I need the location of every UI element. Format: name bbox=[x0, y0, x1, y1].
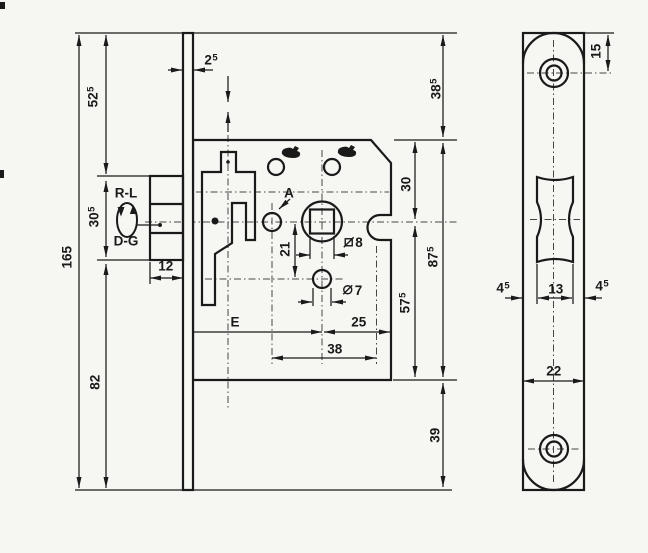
latch-bolt bbox=[150, 176, 183, 260]
scan-artifact bbox=[0, 170, 4, 178]
screw-hook-icon bbox=[282, 146, 300, 158]
dim-top-to-latch: 525 bbox=[86, 87, 100, 108]
dim-spindle-square: 8 bbox=[343, 236, 363, 251]
dim-case-top-to-spindle: 30 bbox=[399, 176, 413, 192]
mortise-lock-technical-drawing: 165 525 305 82 25 R-L D-G 12 A 21 8 7 E … bbox=[0, 0, 648, 553]
dim-backset: E bbox=[230, 315, 239, 329]
dim-cutout-width: 13 bbox=[548, 282, 564, 296]
drawing-linework bbox=[0, 0, 648, 553]
dim-case-bottom-to-end: 39 bbox=[428, 427, 442, 443]
screw-hook-icon bbox=[338, 145, 356, 157]
scan-artifact bbox=[0, 2, 5, 9]
dim-plate-top-to-screw: 15 bbox=[589, 43, 603, 59]
reference-point-label: A bbox=[284, 186, 294, 200]
dim-spindle-to-cylinder: 21 bbox=[278, 241, 292, 257]
dim-spindle-to-edge: 25 bbox=[351, 315, 367, 329]
square-section-icon bbox=[343, 236, 354, 251]
dim-case-height: 875 bbox=[426, 247, 440, 268]
dim-spindle-to-case-bottom: 575 bbox=[398, 293, 412, 314]
lever-pin-dot bbox=[226, 160, 230, 164]
dim-plate-margin-right: 45 bbox=[595, 279, 608, 293]
screw-post-hole-left bbox=[268, 159, 284, 175]
dim-latch-height: 305 bbox=[87, 207, 101, 228]
dim-top-to-case: 385 bbox=[429, 79, 443, 100]
screw-post-hole-right bbox=[324, 159, 340, 175]
dim-latch-projection: 12 bbox=[158, 259, 174, 273]
leader-a-arrow bbox=[279, 199, 290, 209]
dim-faceplate-thickness: 25 bbox=[204, 53, 217, 67]
lock-case-outline bbox=[193, 140, 391, 380]
lever-pivot-dot bbox=[212, 218, 219, 225]
dim-plate-margin-left: 45 bbox=[496, 281, 509, 295]
handing-label-top: R-L bbox=[115, 186, 138, 200]
faceplate-edge-view bbox=[183, 33, 193, 490]
dim-plate-width: 22 bbox=[546, 364, 562, 378]
handing-label-bottom: D-G bbox=[114, 234, 139, 248]
dim-cylinder-hole: 7 bbox=[342, 284, 363, 299]
dim-hole-spacing: 38 bbox=[327, 342, 343, 356]
extension-lines bbox=[75, 33, 614, 490]
dim-total-height: 165 bbox=[60, 245, 74, 268]
dim-latch-to-bottom: 82 bbox=[88, 374, 102, 390]
diameter-icon bbox=[342, 284, 354, 299]
